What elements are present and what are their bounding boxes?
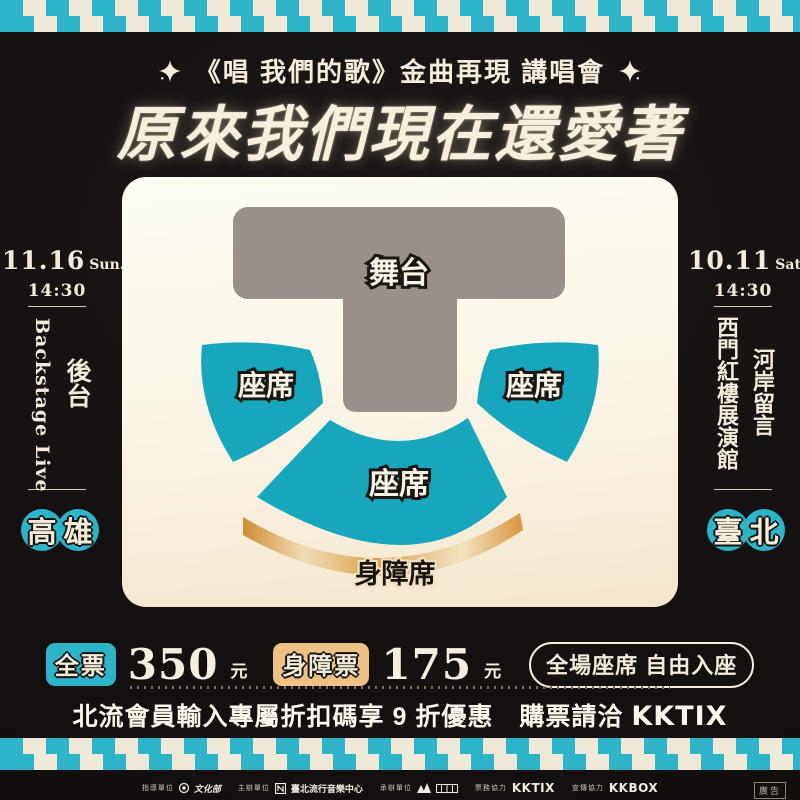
- coorganizer-logo-icon: [417, 783, 431, 793]
- left-venue-zh: 後台: [59, 358, 95, 408]
- seating-note-pill: 全場座席 自由入座: [529, 642, 754, 688]
- city-char: 臺: [713, 509, 742, 551]
- right-date: 10.11: [688, 246, 771, 275]
- right-venue-line-2: 西門紅樓展演館: [710, 316, 742, 470]
- checker-row: [0, 0, 800, 16]
- right-venue-line-1: 河岸留言: [746, 348, 778, 436]
- divider: [714, 489, 772, 490]
- ministry-logo-icon: [179, 783, 189, 793]
- full-ticket-price: 350: [128, 640, 219, 689]
- kktix-footer-logo: KKTIX: [512, 781, 555, 795]
- city-circle: 雄: [57, 509, 99, 551]
- checker-row: [0, 738, 800, 754]
- seat-section-right: [477, 342, 599, 462]
- music-center-logo-icon: [275, 783, 286, 794]
- promo-row: 北流會員輸入專屬折扣碼享 9 折優惠 購票請洽 KKTIX: [0, 697, 800, 733]
- left-event-date: 11.16Sun. 14:30: [2, 246, 112, 301]
- footer-credits: 指導單位 文化部 主辦單位 臺北流行音樂中心 承辦單位 票務協力 KKTIX 宣…: [0, 781, 800, 795]
- discount-text: 北流會員輸入專屬折扣碼享 9 折優惠: [73, 697, 494, 733]
- city-char: 北: [749, 509, 778, 551]
- subtitle-row: 《唱 我們的歌》金曲再現 講唱會: [0, 52, 800, 89]
- stage-label: 舞台: [369, 256, 429, 290]
- coorganizer-logo2-icon: [436, 784, 458, 793]
- credit-logo-text: 臺北流行音樂中心: [291, 782, 363, 795]
- checker-row: [0, 16, 800, 32]
- credit-organizer: 主辦單位 臺北流行音樂中心: [238, 782, 363, 795]
- currency-unit: 元: [484, 657, 501, 682]
- divider: [28, 489, 86, 490]
- credit-label: 主辦單位: [238, 783, 270, 793]
- checker-row: [0, 754, 800, 770]
- credit-logo-text: 文化部: [194, 782, 221, 795]
- credit-label: 承辦單位: [380, 783, 412, 793]
- currency-unit: 元: [230, 657, 247, 682]
- right-time: 14:30: [688, 281, 798, 301]
- seat-label-right: 座席: [506, 369, 562, 401]
- right-event-date: 10.11Sat. 14:30: [688, 246, 798, 301]
- event-subtitle: 《唱 我們的歌》金曲再現 講唱會: [195, 52, 605, 89]
- divider: [28, 306, 86, 307]
- seat-section-left: [201, 342, 323, 462]
- credit-promotion: 宣傳協力 KKBOX: [572, 781, 658, 795]
- city-circle: 北: [743, 509, 785, 551]
- credit-label: 票務協力: [475, 783, 507, 793]
- left-date: 11.16: [2, 246, 85, 275]
- city-badge-taipei: 臺 北: [707, 509, 785, 551]
- dotted-divider: [130, 686, 670, 689]
- seat-label-center: 座席: [369, 467, 429, 501]
- pricing-row: 全票 350 元 身障票 175 元 全場座席 自由入座: [0, 640, 800, 689]
- credit-label: 指導單位: [142, 783, 174, 793]
- sparkle-right-icon: [619, 60, 641, 82]
- left-time: 14:30: [2, 281, 112, 301]
- full-ticket-badge: 全票: [46, 643, 116, 686]
- kkbox-footer-logo: KKBOX: [609, 781, 658, 795]
- city-badge-kaohsiung: 高 雄: [21, 509, 99, 551]
- ad-label: 廣告: [754, 782, 786, 799]
- credit-supervisor: 指導單位 文化部: [142, 782, 221, 795]
- right-weekday: Sat.: [775, 257, 800, 273]
- seatmap-card: 舞台 座席 座席 座席 身障席: [122, 177, 678, 607]
- checker-band-bottom: [0, 738, 800, 770]
- accessible-ticket-price: 175: [381, 640, 472, 689]
- accessible-seat-label: 身障席: [355, 558, 436, 589]
- credit-coorganizer: 承辦單位: [380, 783, 458, 793]
- divider: [714, 306, 772, 307]
- left-weekday: Sun.: [89, 257, 124, 273]
- city-char: 高: [27, 509, 56, 551]
- seat-label-left: 座席: [238, 369, 294, 401]
- checker-band-top: [0, 0, 800, 32]
- city-char: 雄: [63, 509, 92, 551]
- credit-ticketing: 票務協力 KKTIX: [475, 781, 555, 795]
- sparkle-left-icon: [159, 60, 181, 82]
- accessible-ticket-badge: 身障票: [273, 643, 369, 686]
- seatmap-diagram: 舞台 座席 座席 座席 身障席: [122, 177, 678, 607]
- credit-label: 宣傳協力: [572, 783, 604, 793]
- concert-poster: 《唱 我們的歌》金曲再現 講唱會 原來我們現在還愛著: [0, 0, 800, 800]
- main-title: 原來我們現在還愛著: [0, 86, 800, 173]
- left-venue-en: Backstage Live: [31, 318, 53, 493]
- kktix-logo: KKTIX: [631, 701, 727, 732]
- purchase-text: 購票請洽: [519, 697, 623, 733]
